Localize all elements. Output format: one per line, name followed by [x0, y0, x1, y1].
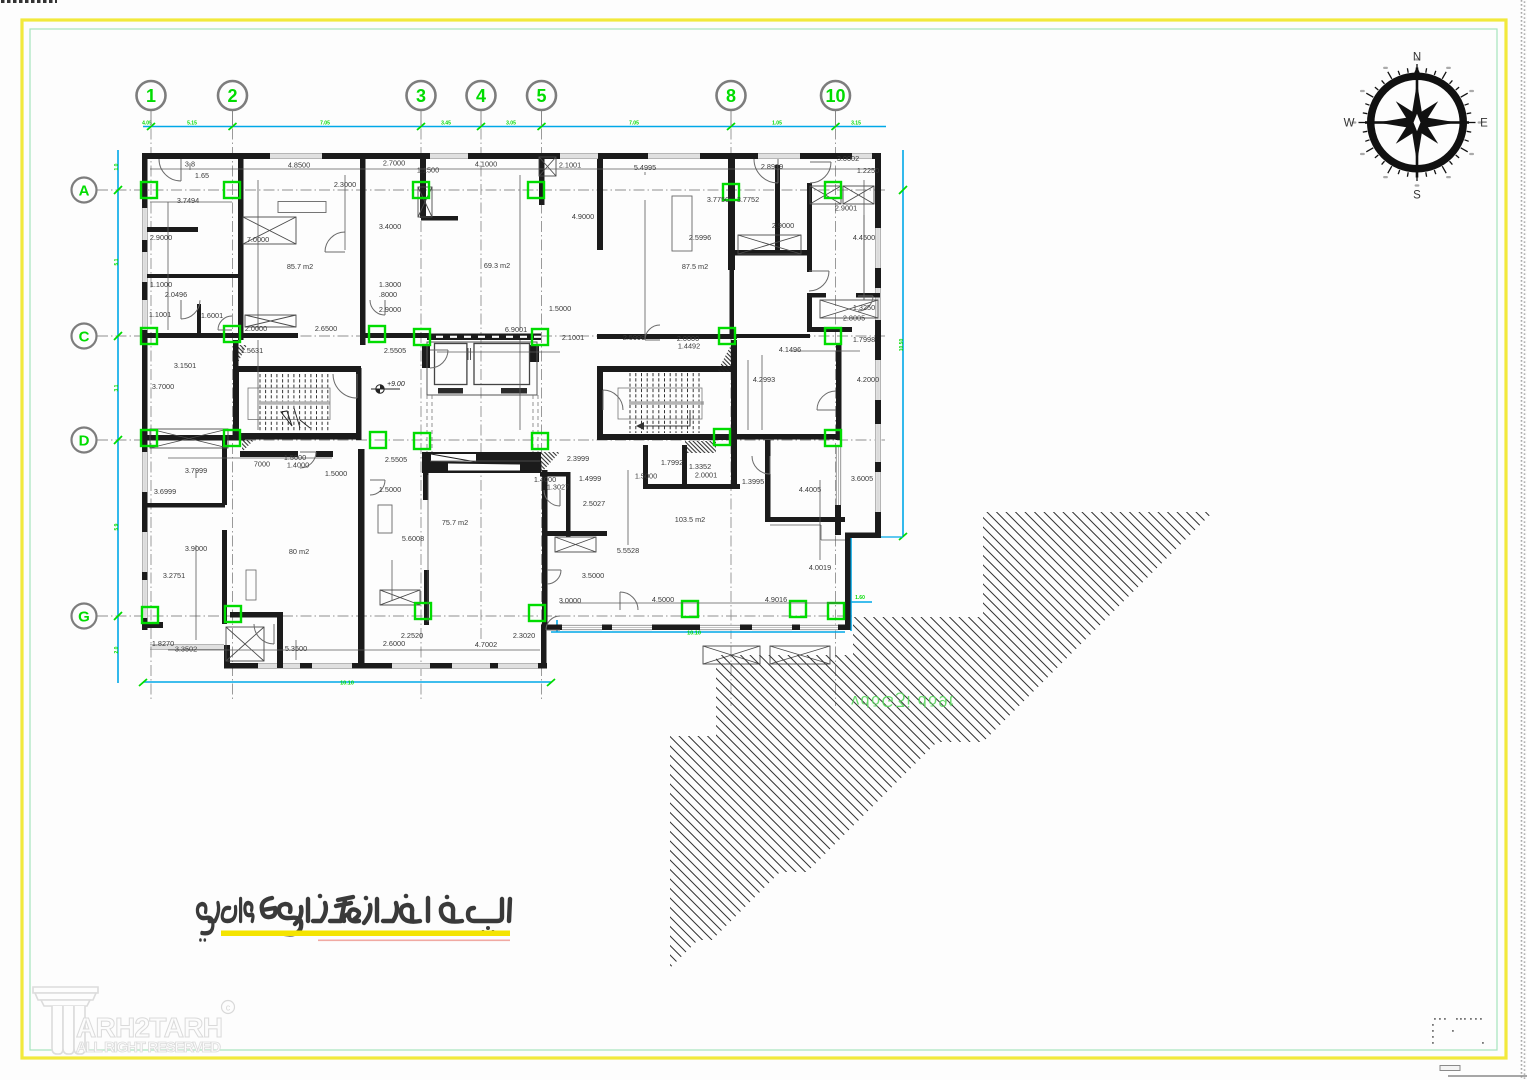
svg-text:1.0: 1.0 — [114, 163, 120, 170]
svg-text:ALL RIGHT RESERVED: ALL RIGHT RESERVED — [76, 1039, 221, 1056]
svg-text:5: 5 — [536, 86, 546, 106]
svg-text:2: 2 — [227, 86, 237, 106]
svg-text:1.5000: 1.5000 — [379, 485, 401, 494]
svg-text:2.0: 2.0 — [114, 646, 120, 653]
svg-text:4.5000: 4.5000 — [652, 595, 674, 604]
svg-text:1.4492: 1.4492 — [678, 342, 700, 351]
svg-text:N: N — [1413, 52, 1421, 64]
svg-text:3.2751: 3.2751 — [163, 571, 185, 580]
svg-text:3.9000: 3.9000 — [185, 544, 207, 553]
svg-text:+9.00: +9.00 — [387, 381, 405, 388]
svg-text:1.3995: 1.3995 — [742, 477, 764, 486]
svg-text:A: A — [79, 183, 90, 200]
svg-text:.8000: .8000 — [379, 290, 397, 299]
svg-text:1.4999: 1.4999 — [579, 474, 601, 483]
svg-text:2.1001: 2.1001 — [559, 161, 581, 170]
svg-text:1.7998: 1.7998 — [853, 335, 875, 344]
svg-text:4: 4 — [476, 86, 486, 106]
svg-text:2.2520: 2.2520 — [401, 631, 423, 640]
svg-text:2.5996: 2.5996 — [689, 233, 711, 242]
svg-text:5.15: 5.15 — [187, 121, 197, 127]
svg-text:3.05: 3.05 — [506, 121, 516, 127]
svg-text:4.1496: 4.1496 — [779, 345, 801, 354]
svg-text:7.05: 7.05 — [320, 121, 330, 127]
svg-text:3.1: 3.1 — [114, 384, 120, 391]
svg-text:2.8005: 2.8005 — [843, 314, 865, 323]
svg-text:7000: 7000 — [254, 460, 270, 469]
svg-text:4.9000: 4.9000 — [572, 212, 594, 221]
svg-text:4.2000: 4.2000 — [857, 375, 879, 384]
svg-text:1.05: 1.05 — [772, 121, 782, 127]
svg-text:2.6500: 2.6500 — [315, 324, 337, 333]
svg-text:2.5505: 2.5505 — [384, 346, 406, 355]
svg-text:80 m2: 80 m2 — [289, 547, 309, 556]
svg-text:2.9000: 2.9000 — [379, 305, 401, 314]
svg-text:3.4000: 3.4000 — [379, 222, 401, 231]
svg-text:W: W — [1344, 118, 1355, 130]
svg-text:5.6008: 5.6008 — [402, 534, 424, 543]
svg-text:10.10: 10.10 — [340, 681, 354, 687]
svg-text:87.5 m2: 87.5 m2 — [682, 262, 708, 271]
svg-text:2.7000: 2.7000 — [383, 159, 405, 168]
svg-text:3.7750: 3.7750 — [707, 195, 729, 204]
svg-text:4.1000: 4.1000 — [475, 160, 497, 169]
svg-text:2.0496: 2.0496 — [165, 290, 187, 299]
svg-text:1.8270: 1.8270 — [152, 639, 174, 648]
svg-text:2.3000: 2.3000 — [334, 180, 356, 189]
svg-text:3.15: 3.15 — [851, 121, 861, 127]
svg-text:1.3250: 1.3250 — [853, 303, 875, 312]
svg-text:4.9016: 4.9016 — [765, 595, 787, 604]
svg-text:4.4500: 4.4500 — [853, 233, 875, 242]
svg-text:vdōGƷi dō9t: vdōGƷi dō9t — [851, 692, 955, 709]
svg-text:1.1500: 1.1500 — [417, 166, 439, 175]
svg-text:2.0001: 2.0001 — [695, 471, 717, 480]
svg-text:4.0019: 4.0019 — [809, 563, 831, 572]
svg-text:4.2993: 4.2993 — [753, 375, 775, 384]
svg-text:2.1001: 2.1001 — [562, 333, 584, 342]
svg-text:1.1000: 1.1000 — [150, 280, 172, 289]
svg-text:1.6001: 1.6001 — [201, 311, 223, 320]
svg-text:3.45: 3.45 — [441, 121, 451, 127]
svg-text:3.7752: 3.7752 — [737, 195, 759, 204]
svg-text:2.5027: 2.5027 — [583, 499, 605, 508]
svg-text:C: C — [79, 329, 90, 346]
svg-text:E: E — [1480, 118, 1488, 130]
svg-text:3.7494: 3.7494 — [177, 196, 199, 205]
svg-text:5.4995: 5.4995 — [634, 163, 656, 172]
svg-text:3.8: 3.8 — [185, 160, 195, 169]
svg-text:3.0002: 3.0002 — [837, 154, 859, 163]
svg-text:S: S — [1413, 190, 1421, 202]
svg-text:2.3999: 2.3999 — [567, 454, 589, 463]
svg-text:10: 10 — [825, 86, 845, 106]
svg-text:2.6000: 2.6000 — [383, 639, 405, 648]
svg-text:D: D — [79, 433, 90, 450]
svg-text:2.3020: 2.3020 — [513, 631, 535, 640]
svg-text:1.7992: 1.7992 — [661, 458, 683, 467]
svg-text:2.9001: 2.9001 — [835, 204, 857, 213]
svg-text:3.5000: 3.5000 — [582, 571, 604, 580]
svg-text:1.3000: 1.3000 — [379, 280, 401, 289]
svg-text:c: c — [226, 1003, 231, 1013]
svg-text:2.5999: 2.5999 — [623, 333, 645, 342]
svg-text:7.0000: 7.0000 — [247, 235, 269, 244]
svg-text:2.5505: 2.5505 — [385, 455, 407, 464]
svg-text:3.6005: 3.6005 — [851, 474, 873, 483]
svg-text:8: 8 — [726, 86, 736, 106]
svg-text:1.5000: 1.5000 — [549, 304, 571, 313]
svg-text:5.5528: 5.5528 — [617, 546, 639, 555]
svg-text:85.7 m2: 85.7 m2 — [287, 262, 313, 271]
svg-text:1.5000: 1.5000 — [325, 469, 347, 478]
svg-text:5.3500: 5.3500 — [285, 644, 307, 653]
svg-text:2.0000: 2.0000 — [245, 324, 267, 333]
svg-text:3.1501: 3.1501 — [174, 361, 196, 370]
svg-text:3: 3 — [416, 86, 426, 106]
svg-text:69.3 m2: 69.3 m2 — [484, 261, 510, 270]
svg-text:3.3502: 3.3502 — [175, 645, 197, 654]
svg-text:75.7 m2: 75.7 m2 — [442, 518, 468, 527]
svg-text:1.65: 1.65 — [195, 171, 209, 180]
svg-text:10.10: 10.10 — [687, 631, 701, 637]
svg-text:1.3027: 1.3027 — [547, 483, 569, 492]
svg-text:1.5000: 1.5000 — [635, 472, 657, 481]
svg-text:G: G — [78, 609, 90, 626]
svg-text:5.1: 5.1 — [114, 258, 120, 265]
svg-text:1.1001: 1.1001 — [149, 310, 171, 319]
svg-text:2.9000: 2.9000 — [772, 221, 794, 230]
svg-text:4.7002: 4.7002 — [475, 640, 497, 649]
svg-text:4.8500: 4.8500 — [288, 161, 310, 170]
svg-text:3.7000: 3.7000 — [152, 382, 174, 391]
svg-text:2.8999: 2.8999 — [761, 162, 783, 171]
svg-text:10.50: 10.50 — [899, 339, 905, 352]
svg-text:1.2250: 1.2250 — [857, 166, 879, 175]
svg-text:1.5631: 1.5631 — [241, 346, 263, 355]
svg-text:2.9000: 2.9000 — [150, 233, 172, 242]
svg-text:3.0000: 3.0000 — [559, 596, 581, 605]
svg-text:7.05: 7.05 — [629, 121, 639, 127]
svg-text:1.60: 1.60 — [855, 595, 865, 601]
svg-text:3.6999: 3.6999 — [154, 487, 176, 496]
svg-text:4.4005: 4.4005 — [799, 485, 821, 494]
svg-text:1.4000: 1.4000 — [287, 461, 309, 470]
svg-text:3.7999: 3.7999 — [185, 466, 207, 475]
svg-text:6.9001: 6.9001 — [505, 325, 527, 334]
svg-text:1: 1 — [146, 86, 156, 106]
svg-text:5.9: 5.9 — [114, 523, 120, 530]
svg-text:103.5 m2: 103.5 m2 — [675, 515, 705, 524]
